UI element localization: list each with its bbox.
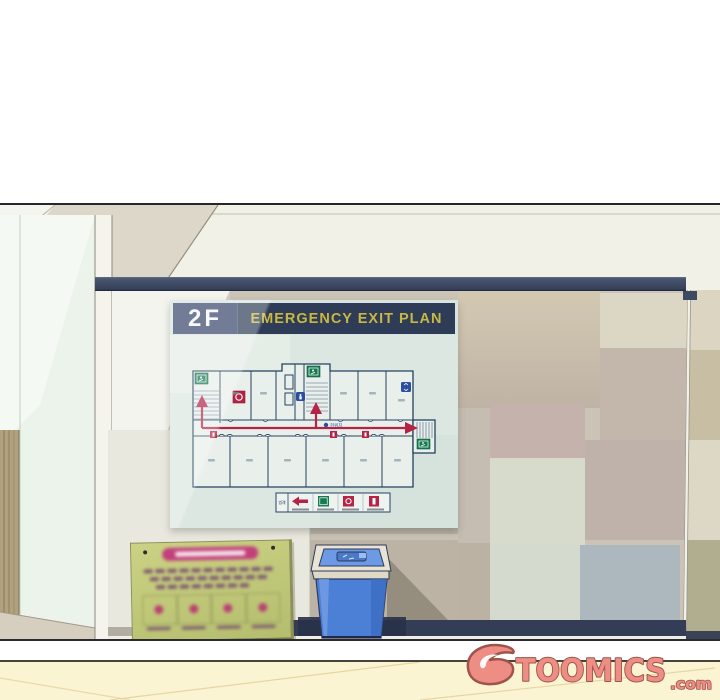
fire-extinguisher-icon (330, 431, 337, 438)
notice-board-content (131, 540, 291, 640)
notice-pictogram (155, 605, 164, 614)
fire-alarm-icon (343, 496, 354, 507)
notice-title-banner (162, 546, 258, 561)
fire-extinguisher-icon (362, 431, 369, 438)
logo-brand-text: TOOMICS (516, 653, 666, 689)
notice-icon-grid (142, 593, 281, 626)
screw-icon (143, 550, 147, 554)
logo-tld-text: .com (670, 675, 712, 693)
fire-extinguisher-icon (210, 431, 217, 438)
you-are-here-label: 현위치 (330, 422, 342, 429)
building-outline (193, 364, 435, 487)
elevator-icon (401, 382, 411, 392)
right-corner-wall (686, 290, 720, 639)
exit-sign-icon (417, 439, 430, 449)
floor-plan: 현위치 범례 (170, 335, 458, 528)
notice-pictogram (189, 604, 198, 613)
emergency-exit-icon (318, 496, 329, 507)
emergency-exit-plan-poster: 2F EMERGENCY EXIT PLAN (170, 300, 458, 528)
trash-lid (311, 545, 391, 579)
plan-legend: 범례 (276, 493, 390, 512)
restroom-icon (296, 392, 305, 401)
exit-sign-icon (195, 373, 208, 384)
logo-swoosh-icon (468, 645, 514, 684)
toomics-logo: TOOMICS .com (458, 638, 716, 698)
fire-extinguisher-icon (369, 496, 379, 507)
trash-body (316, 579, 387, 638)
legend-title: 범례 (279, 500, 286, 505)
poster-title: EMERGENCY EXIT PLAN (238, 311, 455, 327)
screw-icon (271, 546, 275, 550)
wood-door-frame (0, 430, 20, 639)
webtoon-page: 2F EMERGENCY EXIT PLAN (0, 0, 720, 700)
comic-panel: 2F EMERGENCY EXIT PLAN (0, 203, 720, 641)
notice-pictogram (258, 603, 267, 612)
notice-board (130, 539, 294, 641)
exit-sign-icon (307, 366, 320, 377)
floor-label: 2F (173, 303, 238, 334)
notice-pictogram (223, 604, 232, 613)
poster-header: 2F EMERGENCY EXIT PLAN (173, 303, 455, 334)
trash-can (303, 538, 405, 640)
